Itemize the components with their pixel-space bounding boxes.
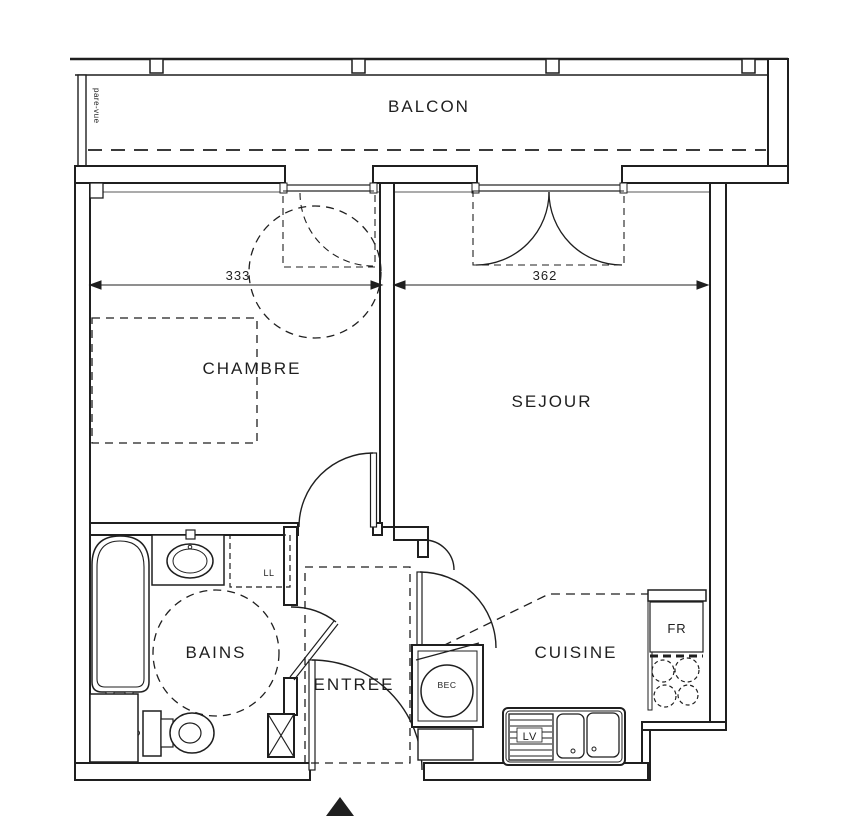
- fridge-counter-band: [648, 590, 706, 601]
- wall-top-right-segment: [622, 166, 788, 183]
- washbasin-inner: [173, 549, 207, 573]
- label-chambre: CHAMBRE: [202, 359, 301, 378]
- balcony-rail-post: [546, 59, 559, 73]
- sink-drain: [592, 747, 596, 751]
- washing-machine-zone: [230, 535, 290, 587]
- dimension-lines: [90, 281, 708, 289]
- sink-basin: [587, 713, 619, 757]
- label-dishwasher: LV: [523, 731, 538, 743]
- dim-arrow: [697, 281, 708, 289]
- wall-top-middle-segment: [373, 166, 477, 183]
- bathroom-cabinet: [90, 694, 138, 762]
- bains-door-swing-arc: [291, 607, 336, 622]
- toilet-bowl-inner: [179, 723, 201, 743]
- label-sejour: SEJOUR: [512, 392, 593, 411]
- sejour-window: [475, 185, 624, 191]
- label-washing-machine: LL: [263, 568, 274, 578]
- windows: [280, 183, 627, 267]
- wall-pilaster-top-left: [90, 183, 103, 198]
- balcony-left-screen: [78, 75, 86, 168]
- sink-basin: [557, 714, 584, 758]
- entry-arrow: [326, 797, 354, 816]
- bathtub-inner: [97, 541, 144, 687]
- wall-left: [75, 183, 90, 780]
- label-water-heater: BEC: [438, 680, 457, 690]
- wall-right: [710, 183, 726, 722]
- label-fridge: FR: [667, 621, 686, 636]
- wall-top-left-segment: [75, 166, 285, 183]
- dim-label-chambre: 333: [226, 268, 251, 283]
- sejour-window-leaf-arc-left: [476, 192, 549, 265]
- floor-plan-page: BALCON pare-vue CHAMBRE SEJOUR BAINS ENT…: [0, 0, 850, 816]
- kitchen-fixtures: [412, 590, 706, 765]
- label-pare-vue: pare-vue: [92, 88, 101, 124]
- dim-label-sejour: 362: [533, 268, 558, 283]
- chambre-window-swing-zone: [283, 191, 375, 267]
- water-heater-circle: [421, 665, 473, 717]
- wall-step-horizontal: [394, 527, 428, 540]
- balcony-right-wall: [768, 59, 788, 169]
- chambre-window: [283, 185, 375, 191]
- cooktop-burner: [675, 658, 699, 682]
- cooktop-burner: [654, 685, 676, 707]
- balcony-rail-post: [352, 59, 365, 73]
- sejour-window-leaf-arc-right: [549, 192, 622, 265]
- kitchen-low-cabinet: [418, 729, 473, 760]
- cooktop-burner: [678, 685, 698, 705]
- bed-clearance-zone: [92, 318, 257, 443]
- balcony-rail-post: [150, 59, 163, 73]
- chambre-door-swing-arc: [299, 453, 373, 527]
- balcony-rail-post: [742, 59, 755, 73]
- wall-chambre-sejour: [380, 183, 394, 527]
- toilet-cistern: [143, 711, 161, 756]
- sejour-door-swing-arc: [420, 572, 496, 648]
- label-cuisine: CUISINE: [535, 643, 618, 662]
- label-bains: BAINS: [185, 643, 246, 662]
- dim-arrow: [90, 281, 101, 289]
- sink-drain: [571, 749, 575, 753]
- washbasin-faucet: [186, 530, 195, 539]
- entree-clearance-zone: [305, 567, 410, 763]
- cooktop-burner: [652, 660, 674, 682]
- chambre-door-leaf: [371, 453, 377, 527]
- label-entree: ENTREE: [314, 675, 395, 694]
- turning-circle-chambre: [249, 206, 381, 338]
- wall-bottom-right-step-h: [642, 722, 726, 730]
- floor-plan-drawing: BALCON pare-vue CHAMBRE SEJOUR BAINS ENT…: [0, 0, 850, 816]
- wall-bottom-left-segment: [75, 763, 310, 780]
- sejour-door-leaf: [417, 572, 422, 645]
- washbasin-drain: [188, 545, 192, 549]
- chambre-window-swing-arc: [300, 193, 373, 266]
- wall-step-vertical: [418, 540, 428, 557]
- dim-arrow: [394, 281, 405, 289]
- label-balcon: BALCON: [388, 97, 470, 116]
- wall-bains-east-lower: [284, 678, 297, 715]
